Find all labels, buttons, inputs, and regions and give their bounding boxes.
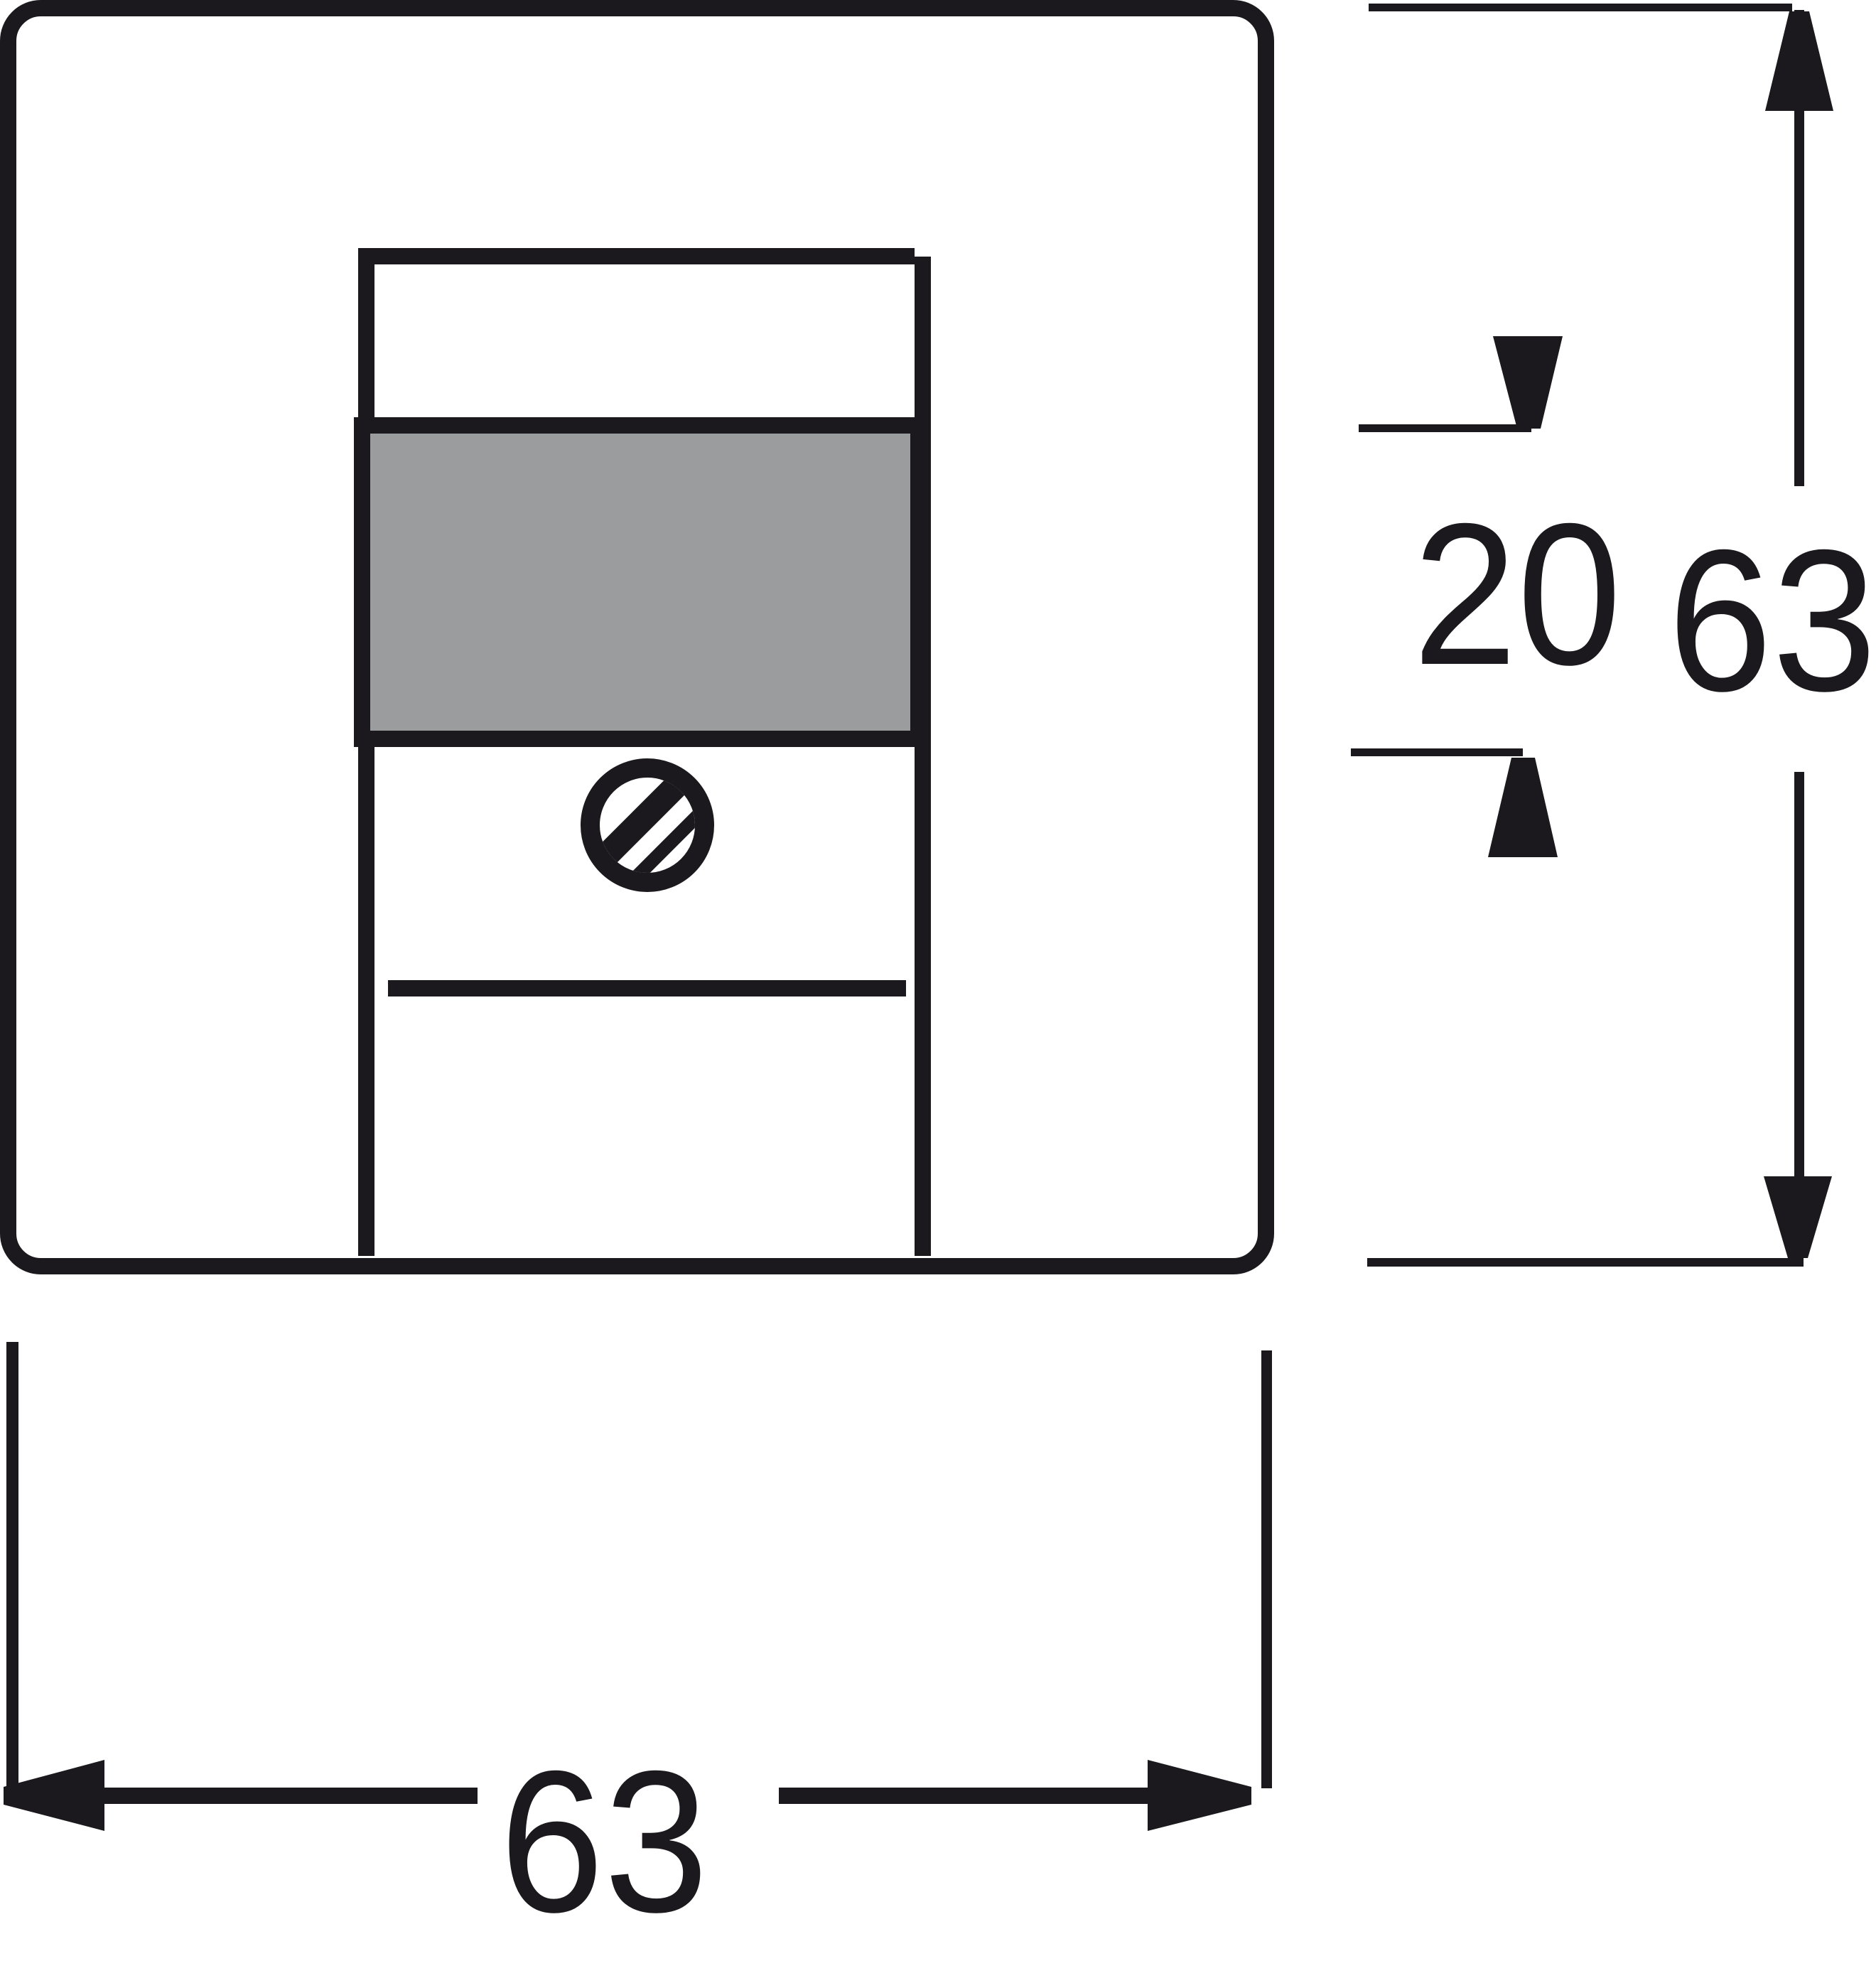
svg-text:63: 63 — [500, 1729, 708, 1955]
svg-text:63: 63 — [1668, 508, 1876, 734]
svg-text:20: 20 — [1413, 482, 1622, 707]
